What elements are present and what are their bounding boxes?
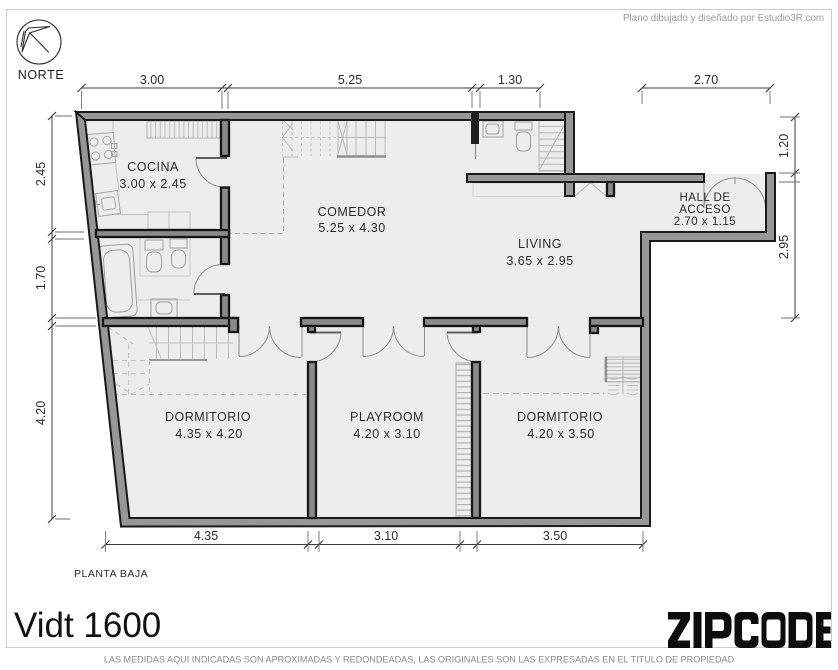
svg-text:Plano dibujado y diseñado por: Plano dibujado y diseñado por Estudio3R.… <box>623 13 824 24</box>
svg-text:4.20 x 3.50: 4.20 x 3.50 <box>527 427 594 441</box>
svg-text:LAS MEDIDAS AQUI INDICADAS SON: LAS MEDIDAS AQUI INDICADAS SON APROXIMAD… <box>104 655 735 665</box>
svg-text:2.70 x 1.15: 2.70 x 1.15 <box>674 216 736 228</box>
svg-text:4.20: 4.20 <box>34 401 48 425</box>
svg-text:2.45: 2.45 <box>34 162 48 186</box>
svg-text:3.10: 3.10 <box>374 529 398 543</box>
svg-text:5.25 x 4.30: 5.25 x 4.30 <box>318 221 385 235</box>
svg-text:2.70: 2.70 <box>694 73 718 87</box>
svg-text:HALL DE: HALL DE <box>679 192 730 204</box>
svg-text:5.25: 5.25 <box>338 73 362 87</box>
svg-text:PLANTA BAJA: PLANTA BAJA <box>74 568 148 580</box>
svg-text:4.35 x 4.20: 4.35 x 4.20 <box>175 427 242 441</box>
svg-text:DORMITORIO: DORMITORIO <box>165 410 251 424</box>
svg-text:PLAYROOM: PLAYROOM <box>350 410 424 424</box>
svg-text:COMEDOR: COMEDOR <box>318 205 387 219</box>
svg-text:3.00 x 2.45: 3.00 x 2.45 <box>119 177 186 191</box>
svg-text:ACCESO: ACCESO <box>679 204 731 216</box>
svg-text:Vidt 1600: Vidt 1600 <box>14 606 161 645</box>
svg-text:DORMITORIO: DORMITORIO <box>517 410 603 424</box>
svg-text:3.00: 3.00 <box>140 73 164 87</box>
svg-text:COCINA: COCINA <box>127 160 179 174</box>
svg-text:3.50: 3.50 <box>543 529 567 543</box>
svg-text:NORTE: NORTE <box>18 68 65 82</box>
svg-text:1.70: 1.70 <box>34 266 48 290</box>
svg-text:LIVING: LIVING <box>518 237 562 251</box>
svg-text:1.30: 1.30 <box>498 73 522 87</box>
svg-text:2.95: 2.95 <box>777 235 791 259</box>
svg-text:1.20: 1.20 <box>777 134 791 158</box>
svg-text:4.20 x 3.10: 4.20 x 3.10 <box>353 427 420 441</box>
svg-text:4.35: 4.35 <box>194 529 218 543</box>
svg-text:3.65 x 2.95: 3.65 x 2.95 <box>506 254 573 268</box>
